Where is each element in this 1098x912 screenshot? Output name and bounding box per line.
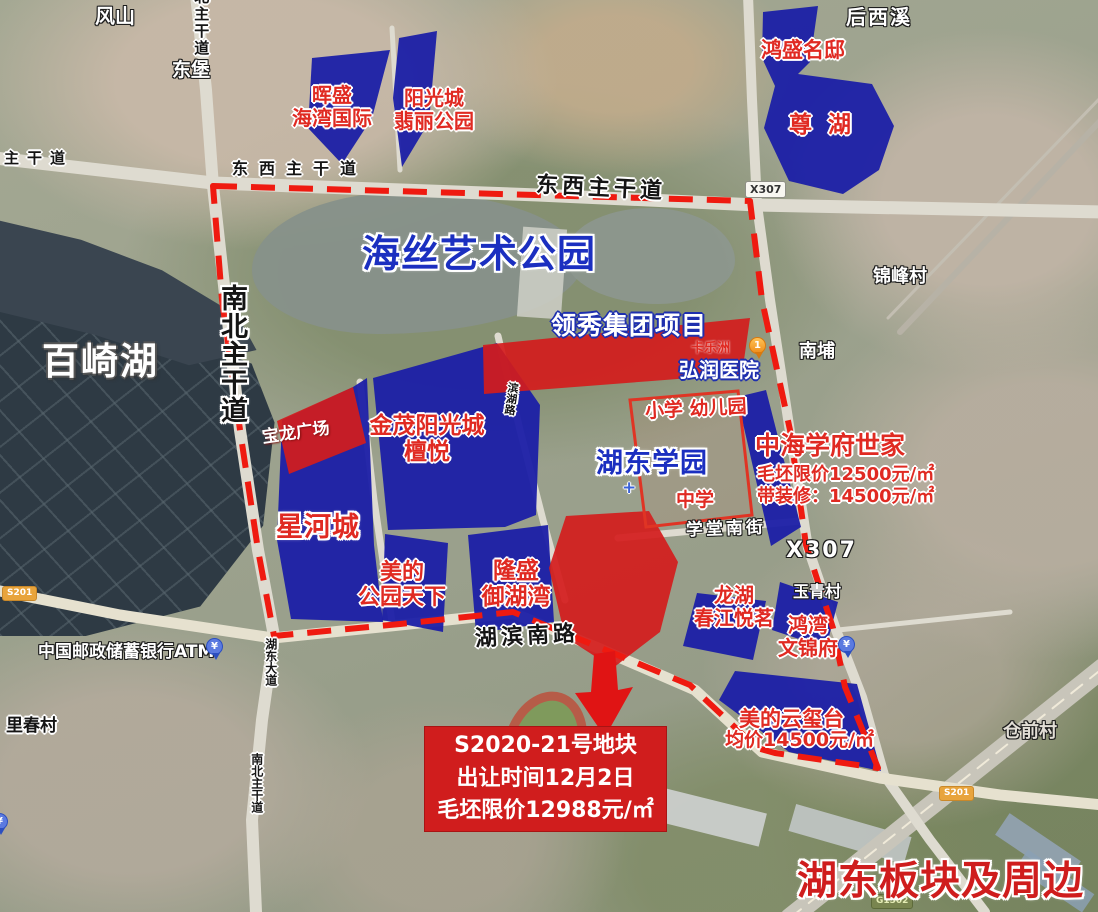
village-label-jinfeng: 锦峰村 (873, 267, 927, 288)
hospital-pin-icon: 1 (749, 337, 766, 354)
plot-label-huisheng-line1: 晖盛 (285, 84, 379, 107)
plot-label-lingxiu: 领秀集团项目 (551, 312, 707, 341)
cross-poi-icon: + (622, 478, 636, 498)
plot-label-hongwan-line2: 文锦府 (768, 637, 848, 660)
bank-pin-yuan: ¥ (843, 639, 850, 650)
plot-label-jinmao: 金茂阳光城 檀悦 (366, 413, 488, 466)
poi-label-kalezhou: 卡乐洲 (691, 342, 730, 357)
plot-label-longhu-line1: 龙湖 (681, 584, 787, 607)
plot-label-hongsheng-mingdi: 鸿盛名邸 (761, 38, 845, 62)
atm-pin-yuan: ¥ (211, 641, 218, 652)
road-minor-east (838, 612, 1010, 630)
plot-label-meidi-park-line1: 美的 (344, 560, 460, 585)
plot-label-xinghe: 星河城 (276, 512, 360, 543)
plot-hongsheng-zunhu (762, 6, 894, 194)
village-label-nanpu: 南埔 (799, 342, 835, 363)
plot-label-zhonghai-name: 中海学府世家 (755, 432, 905, 461)
plot-label-meidi-yunxitai-name: 美的云玺台 (739, 707, 844, 731)
info-box-plot-id: S2020-21号地块 (425, 731, 666, 762)
plot-label-longsheng-line2: 御湖湾 (474, 584, 558, 610)
road-label-dongxi-edge: 东西主干道 (0, 150, 73, 167)
plot-label-zunhu: 尊湖 (789, 112, 867, 138)
road-label-x307-big: X307 (786, 538, 857, 563)
hospital-pin-number: 1 (754, 340, 761, 351)
bank-pin-icon: ¥ (838, 636, 855, 653)
plot-info-box: S2020-21号地块 出让时间12月2日 毛坯限价12988元/㎡ (424, 726, 667, 832)
village-label-yuqing: 玉青村 (793, 583, 841, 601)
plot-label-huisheng-line2: 海湾国际 (285, 107, 379, 130)
plot-label-zhonghai-price1: 毛坯限价12500元/㎡ (757, 465, 934, 486)
satellite-map: 风山 东堡 后西溪 南北主干道 东西主干道 东西主干道 东西主干道 晖盛 海湾国… (0, 0, 1098, 912)
road-label-hudong-avenue: 湖东大道 (263, 638, 277, 686)
road-label-xuetang: 学堂南街 (686, 519, 767, 541)
plot-label-longsheng-line1: 隆盛 (474, 558, 558, 584)
plot-label-yangguang-line1: 阳光城 (388, 87, 480, 110)
atm-pin-icon: ¥ (206, 638, 223, 655)
plot-label-longsheng: 隆盛 御湖湾 (474, 558, 558, 611)
plot-label-zhonghai-price2: 带装修：14500元/㎡ (757, 487, 934, 508)
village-label-fengshan: 风山 (95, 5, 135, 28)
village-label-houxixi: 后西溪 (846, 6, 912, 29)
campus-label-hudong: 湖东学园 (596, 448, 708, 479)
poi-label-post-atm: 中国邮政储蓄银行ATM (38, 643, 214, 663)
village-label-cangqian: 仓前村 (1003, 722, 1057, 743)
plot-label-hongwan: 鸿湾 文锦府 (768, 614, 848, 660)
village-label-dongbao: 东堡 (172, 60, 210, 82)
plot-label-yangguang-line2: 翡丽公园 (388, 110, 480, 133)
plot-label-yangguang: 阳光城 翡丽公园 (388, 87, 480, 133)
map-title: 湖东板块及周边 (797, 848, 1084, 906)
plot-label-meidi-park-line2: 公园天下 (344, 585, 460, 610)
road-label-dongxi-west: 东西主干道 (232, 160, 367, 178)
road-label-nanbei-north: 南北主干道 (192, 0, 209, 57)
road-badge-x307: X307 (745, 181, 786, 198)
plot-label-huisheng: 晖盛 海湾国际 (285, 84, 379, 130)
road-label-nanbei-big: 南北主干道 (216, 284, 247, 424)
plot-label-hongwan-line1: 鸿湾 (768, 614, 848, 637)
school-label-middle: 中学 (676, 490, 714, 512)
road-badge-s201-east: S201 (939, 786, 974, 801)
plot-label-meidi-yunxitai-price: 均价14500元/㎡ (725, 730, 874, 752)
park-label-haisi: 海丝艺术公园 (362, 233, 596, 277)
railway (900, 118, 1098, 332)
plot-label-jinmao-line2: 檀悦 (366, 439, 488, 465)
info-box-price-cap: 毛坯限价12988元/㎡ (425, 796, 666, 827)
lake-label-baiqi: 百崎湖 (42, 341, 159, 384)
poi-label-hongrun-hospital: 弘润医院 (679, 359, 759, 382)
info-box-sale-date: 出让时间12月2日 (425, 764, 666, 795)
bank-pin-yuan-edge: ¥ (0, 816, 3, 827)
road-label-nanbei-south: 南北主干道 (249, 753, 263, 813)
plot-label-meidi-park: 美的 公园天下 (344, 560, 460, 611)
road-badge-s201-west: S201 (2, 586, 37, 601)
plot-label-jinmao-line1: 金茂阳光城 (366, 413, 488, 439)
village-label-lichun: 里春村 (6, 717, 57, 737)
